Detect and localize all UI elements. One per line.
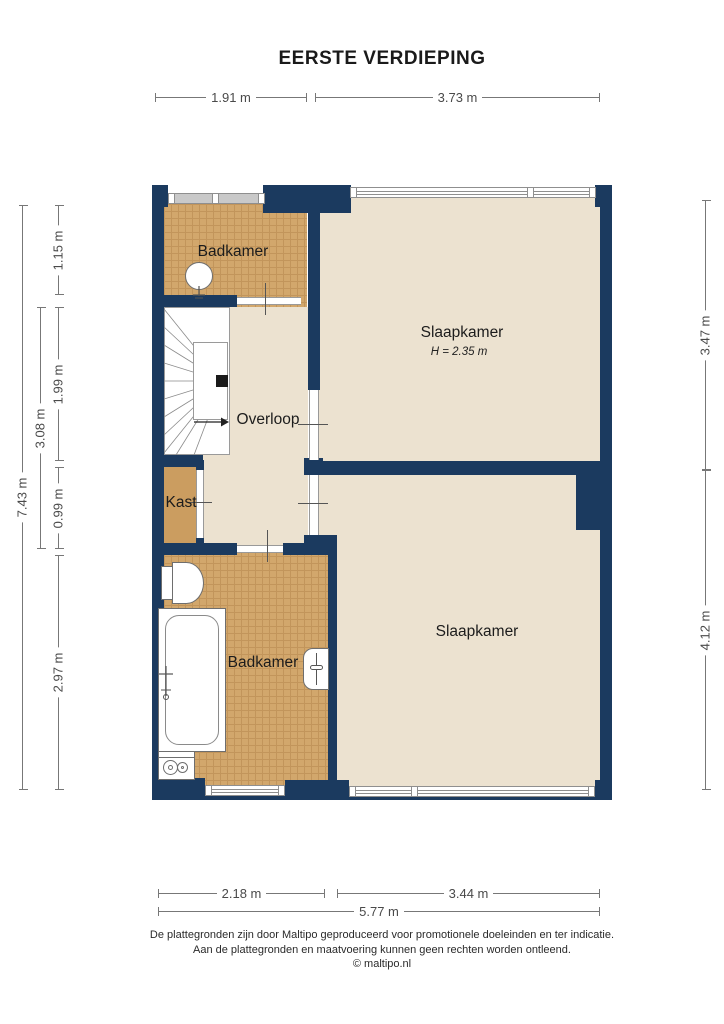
wall-bottom-left-block: [152, 778, 205, 800]
dim-label: 1.15 m: [51, 225, 66, 275]
dim-right-seg2: 4.12 m: [705, 470, 706, 790]
washing-machine: [158, 751, 195, 780]
staircase: [164, 307, 230, 455]
window-mullion: [349, 786, 356, 797]
door-mark: [265, 283, 266, 315]
door-mark: [267, 530, 268, 562]
slaapkamer-top-label: Slaapkamer: [421, 324, 504, 342]
wall-corner-bottom-right: [595, 780, 612, 800]
washer-drum-dot: [168, 765, 173, 770]
door-badkamer-bottom: [237, 545, 283, 553]
door-slaapkamer-bottom: [309, 475, 319, 535]
dim-label: 0.99 m: [51, 483, 66, 533]
window-slaapkamer-bottom: [349, 786, 595, 797]
door-kast: [196, 470, 204, 538]
window-mullion: [278, 785, 285, 796]
sink-fixture-bottom: [303, 648, 329, 690]
faucet-icon: [191, 286, 207, 302]
washer-top-line: [159, 757, 194, 758]
window-slaapkamer-top: [350, 187, 596, 198]
dim-label: 1.99 m: [51, 359, 66, 409]
badkamer-top-label: Badkamer: [198, 243, 269, 261]
dim-label: 5.77 m: [354, 904, 404, 919]
dim-label: 3.44 m: [444, 886, 494, 901]
window-mullion: [350, 187, 357, 198]
page-title: EERSTE VERDIEPING: [37, 48, 724, 70]
window-mullion: [168, 193, 175, 204]
dim-top-left: 1.91 m: [155, 97, 307, 98]
window-badkamer-top: [168, 193, 265, 204]
wall-corner-top-left: [152, 185, 168, 207]
dim-left-middle: 3.08 m: [40, 307, 41, 549]
door-mark: [298, 424, 328, 425]
floor-plan-page: { "title": "EERSTE VERDIEPING", "rooms":…: [0, 0, 724, 1024]
door-mark: [298, 503, 328, 504]
stair-newel-post: [216, 375, 228, 387]
dim-bottom-right: 3.44 m: [337, 893, 600, 894]
window-mullion: [588, 786, 595, 797]
door-slaapkamer-top: [309, 390, 319, 460]
window-mullion: [527, 187, 534, 198]
wall-bottom-mid-block: [285, 780, 349, 800]
wall-bathroom-top-left: [152, 543, 237, 555]
slaapkamer-bottom-label: Slaapkamer: [436, 623, 519, 641]
dim-label: 4.12 m: [698, 605, 713, 655]
window-mullion: [205, 785, 212, 796]
wall-kast-door-cap-top: [196, 460, 204, 470]
dim-bottom-total: 5.77 m: [158, 911, 600, 912]
wall-bathroom-right: [328, 543, 337, 792]
dim-left-seg3: 0.99 m: [58, 467, 59, 549]
disclaimer-line-1: De plattegronden zijn door Maltipo gepro…: [37, 928, 724, 943]
dim-label: 7.43 m: [15, 473, 30, 523]
wall-corridor-upper: [308, 204, 320, 390]
window-mullion: [258, 193, 265, 204]
dim-right-seg1: 3.47 m: [705, 200, 706, 470]
faucet-handle: [310, 665, 323, 670]
bathtub-faucet-icon: [156, 664, 176, 700]
door-badkamer-top: [237, 297, 301, 305]
dim-label: 1.91 m: [206, 90, 256, 105]
overloop-label: Overloop: [237, 411, 300, 429]
dim-bottom-left: 2.18 m: [158, 893, 325, 894]
window-badkamer-bottom: [205, 785, 285, 796]
dim-left-seg1: 1.15 m: [58, 205, 59, 295]
ceiling-height-note: H = 2.35 m: [431, 346, 488, 358]
window-mullion: [411, 786, 418, 797]
kast-label: Kast: [165, 494, 196, 512]
dim-label: 3.08 m: [33, 403, 48, 453]
disclaimer: De plattegronden zijn door Maltipo gepro…: [37, 928, 724, 972]
dim-left-total: 7.43 m: [22, 205, 23, 790]
window-mullion: [589, 187, 596, 198]
dim-label: 3.73 m: [433, 90, 483, 105]
dim-label: 2.18 m: [217, 886, 267, 901]
washer-dial-dot: [181, 766, 184, 769]
dim-left-seg4: 2.97 m: [58, 555, 59, 790]
window-mullion: [212, 193, 219, 204]
badkamer-bottom-label: Badkamer: [228, 654, 299, 672]
dim-left-seg2: 1.99 m: [58, 307, 59, 461]
dim-label: 2.97 m: [51, 648, 66, 698]
disclaimer-line-2: Aan de plattegronden en maatvoering kunn…: [37, 943, 724, 958]
dim-top-right: 3.73 m: [315, 97, 600, 98]
wall-bedroom-divider: [320, 461, 612, 475]
dim-label: 3.47 m: [698, 310, 713, 360]
wall-chimney-notch: [576, 473, 612, 530]
copyright: © maltipo.nl: [37, 957, 724, 972]
wall-top-middle: [263, 185, 351, 213]
